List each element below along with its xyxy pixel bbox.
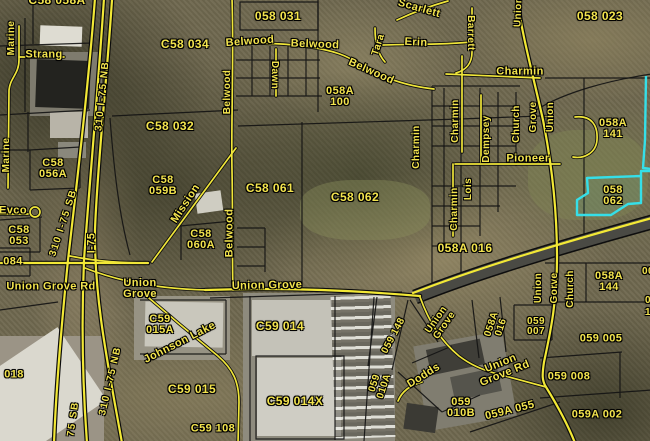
parcel-label: 058A 100 bbox=[326, 86, 354, 108]
parcel-label: C59 014 bbox=[256, 320, 304, 332]
road-label: Charmin bbox=[451, 99, 461, 142]
road-label: Strang bbox=[25, 49, 62, 60]
parcel-label: C58 061 bbox=[246, 182, 294, 194]
road-label: Lois bbox=[464, 178, 474, 200]
road-label: Union bbox=[534, 273, 544, 303]
road-label: Charmin bbox=[412, 125, 422, 168]
road-label: Erin bbox=[404, 37, 428, 49]
road-label: Union Grove bbox=[123, 278, 157, 300]
road-label: Belwood bbox=[223, 70, 233, 114]
road-label: I-75 bbox=[86, 233, 97, 254]
parcel-label: C58 056A bbox=[39, 158, 67, 180]
parcel-label: C58 058A bbox=[28, 0, 85, 6]
parcel-label: 058 031 bbox=[255, 10, 301, 22]
road-label: Union bbox=[513, 0, 524, 27]
parcel-label: C59 014X bbox=[267, 395, 324, 407]
map-canvas[interactable]: C58 058A058 031C58 034058 023C58 032058A… bbox=[0, 0, 650, 441]
parcel-label: 059 010B bbox=[447, 397, 475, 419]
parcel-label: 00 bbox=[642, 267, 650, 277]
road-label: Union Grove bbox=[232, 280, 303, 292]
road-label: Union bbox=[546, 102, 556, 132]
parcel-label: 059 008 bbox=[548, 371, 591, 382]
road-label: Marine bbox=[7, 21, 17, 56]
parcel-label: 058 062 bbox=[595, 185, 632, 207]
road-label: Barrett bbox=[465, 15, 475, 51]
parcel-label: C58 062 bbox=[331, 191, 379, 203]
parcel-label: 059A 002 bbox=[572, 409, 623, 420]
road-label: Marine bbox=[2, 138, 12, 173]
parcel-label: 059 007 bbox=[527, 317, 545, 337]
road-label: Charmin bbox=[450, 187, 460, 230]
road-label: Pioneer bbox=[506, 153, 549, 164]
road-label: Dawn bbox=[269, 61, 279, 89]
parcel-label: 058A 016 bbox=[438, 242, 493, 254]
road-label: Charmin bbox=[496, 66, 543, 77]
parcel-label: C59 015A bbox=[146, 314, 174, 336]
parcel-label: 058A 141 bbox=[599, 118, 627, 140]
parcel-label: 018 bbox=[4, 369, 24, 380]
parcel-label: C59 015 bbox=[168, 383, 216, 395]
road-label: Belwood bbox=[290, 39, 339, 52]
road-label: Grove bbox=[529, 102, 539, 133]
road-label: Union Grove Rd bbox=[6, 281, 95, 292]
road-label: Church bbox=[566, 270, 576, 307]
road-label: Belwood bbox=[224, 209, 235, 258]
road-label: Evco bbox=[0, 205, 27, 216]
parcel-label: C58 032 bbox=[146, 120, 194, 132]
parcel-label: C58 059B bbox=[149, 175, 177, 197]
parcel-label: C58 060A bbox=[187, 229, 215, 251]
parcel-label: C58 034 bbox=[161, 38, 209, 50]
road-label: Church bbox=[512, 105, 522, 142]
parcel-label: 1 bbox=[645, 308, 650, 318]
road-label: Gorve bbox=[550, 273, 560, 304]
road-label: Dempsey bbox=[482, 115, 492, 162]
parcel-label: 8 084 bbox=[0, 256, 23, 267]
parcel-label: 0 bbox=[645, 296, 650, 306]
parcel-label: C58 053 bbox=[8, 225, 29, 247]
parcel-label: C59 108 bbox=[191, 423, 235, 434]
parcel-label: 058 023 bbox=[577, 10, 623, 22]
parcel-label: 059 005 bbox=[580, 333, 623, 344]
parcel-label: 058A 144 bbox=[595, 271, 623, 293]
